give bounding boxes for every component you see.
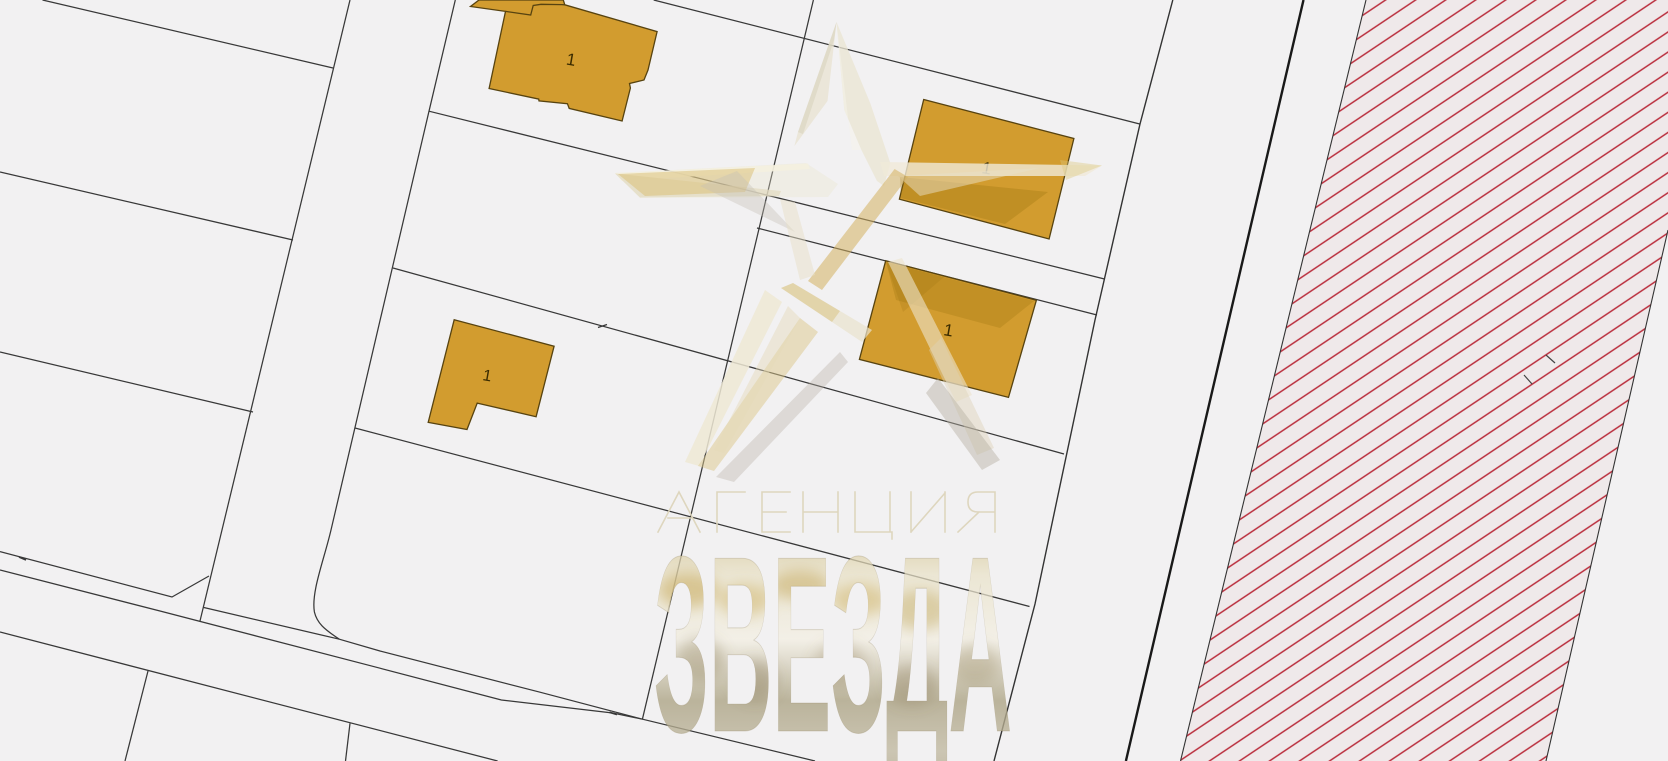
svg-text:ЗВЕЗДА: ЗВЕЗДА — [654, 505, 1012, 761]
